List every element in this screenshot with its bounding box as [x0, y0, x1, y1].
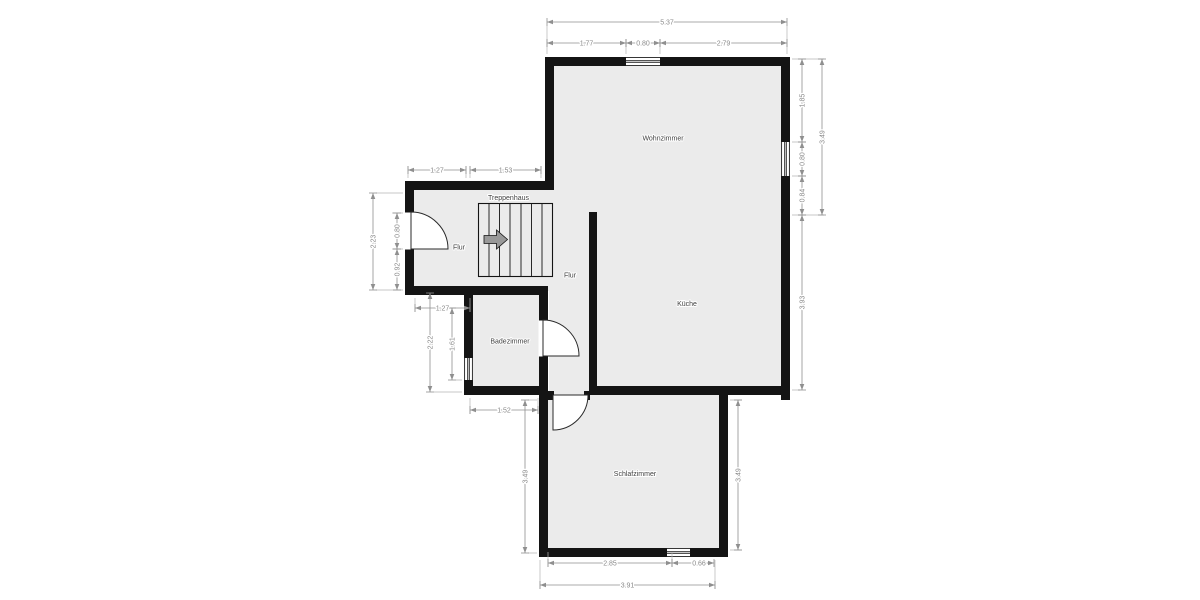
- wall-segment: [545, 57, 554, 190]
- window-glass: [667, 548, 690, 557]
- dim-label-hall-seg1: 1.27: [430, 168, 444, 175]
- room-label-flur-lower: Flur: [564, 273, 577, 280]
- floor-plan-canvas: 5.37 1.77 0.80 2.79 1.27 1.53 2.23 0.80 …: [0, 0, 1200, 600]
- wall-segment: [539, 548, 728, 557]
- wall-segment: [464, 386, 548, 395]
- wall-segment: [545, 57, 790, 66]
- wall-segment: [539, 386, 548, 557]
- dim-label-left-seg: 0.92: [395, 263, 402, 277]
- dim-label-bed-bottom-seg: 2.85: [603, 561, 617, 568]
- wall-segment: [719, 391, 728, 557]
- dim-label-top-window: 0.80: [636, 41, 650, 48]
- window-glass: [626, 57, 660, 66]
- dim-label-bed-left: 3.49: [523, 470, 530, 484]
- dim-label-right-seg1: 1.85: [800, 94, 807, 108]
- dim-label-bath-outer: 2.22: [428, 336, 435, 350]
- dim-label-right-upper-total: 3.49: [820, 130, 827, 144]
- dim-label-bed-bottom-total: 3.91: [621, 583, 635, 590]
- dim-label-left-total: 2.23: [371, 235, 378, 249]
- room-label-flur-upper: Flur: [453, 245, 466, 252]
- wall-segment: [589, 386, 790, 395]
- window-bedroom: [667, 548, 690, 557]
- dim-label-bath-width: 1.52: [497, 408, 511, 415]
- dim-label-left-door: 0.80: [395, 224, 402, 238]
- room-label-badezimmer: Badezimmer: [490, 339, 530, 346]
- dim-label-right-window: 0.80: [800, 152, 807, 166]
- window-glass: [781, 142, 790, 176]
- room-label-kueche: Küche: [677, 301, 697, 308]
- window-right: [781, 142, 790, 176]
- window-glass: [464, 358, 473, 380]
- floor-plan: 5.37 1.77 0.80 2.79 1.27 1.53 2.23 0.80 …: [0, 0, 1200, 600]
- room-label-treppenhaus: Treppenhaus: [488, 195, 529, 202]
- wall-segment: [781, 57, 790, 400]
- window-bathroom: [464, 358, 473, 380]
- dim-label-bath-inner: 1.61: [450, 337, 457, 351]
- wall-segment: [589, 212, 597, 395]
- dim-label-bath-top: 1.27: [436, 306, 450, 313]
- room-label-wohnzimmer: Wohnzimmer: [642, 136, 684, 143]
- dim-label-top-seg1: 1.77: [580, 41, 594, 48]
- dim-label-right-seg2: 0.84: [800, 189, 807, 203]
- room-label-schlafzimmer: Schlafzimmer: [614, 471, 657, 478]
- dim-label-right-lower: 3.93: [800, 296, 807, 310]
- dim-label-top-seg2: 2.79: [717, 41, 731, 48]
- window-top: [626, 57, 660, 66]
- dim-label-top-total: 5.37: [660, 20, 674, 27]
- wall-segment: [405, 286, 548, 295]
- dim-label-bed-right: 3.49: [736, 468, 743, 482]
- dim-label-bed-bottom-window: 0.66: [692, 561, 706, 568]
- dim-label-hall-seg2: 1.53: [499, 168, 513, 175]
- wall-segment: [405, 181, 554, 190]
